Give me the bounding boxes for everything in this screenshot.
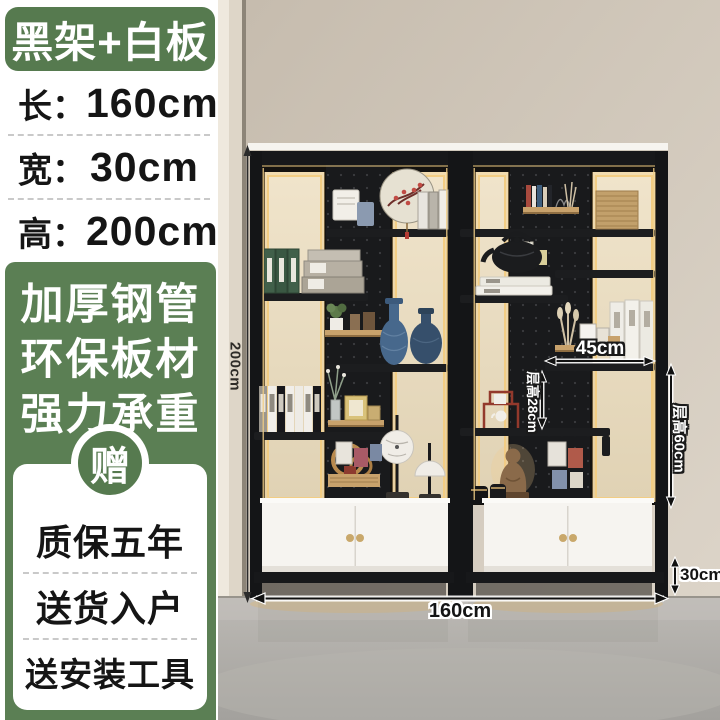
feature-line: 环保板材 xyxy=(5,333,216,388)
dimension-label-base-height: 30cm xyxy=(680,565,720,585)
size-value: 160cm xyxy=(86,80,219,127)
service-row-warranty: 质保五年 xyxy=(13,508,207,572)
service-row-delivery: 送货入户 xyxy=(23,572,197,638)
dimension-label-tier-large: 层高60cm xyxy=(670,393,691,485)
gift-badge: 赠 xyxy=(71,424,149,502)
size-spec-list: 长： 160cm 宽： 30cm 高： 200cm xyxy=(8,72,210,262)
tan-book-stack xyxy=(596,191,638,229)
size-value: 30cm xyxy=(90,144,199,191)
dimension-label-shelf-span: 45cm xyxy=(570,338,630,360)
size-label: 高： xyxy=(18,207,86,256)
led-top-strip xyxy=(248,143,668,151)
service-row-tools: 送安装工具 xyxy=(23,638,197,704)
storage-box-stack xyxy=(302,250,364,293)
variant-badge: 黑架+白板 xyxy=(5,7,215,71)
size-value: 200cm xyxy=(86,208,219,255)
product-promo-image: 黑架+白板 长： 160cm 宽： 30cm 高： 200cm 加厚钢管 环保板… xyxy=(0,0,720,720)
file-boxes-top xyxy=(418,190,448,229)
info-sidebar: 黑架+白板 长： 160cm 宽： 30cm 高： 200cm 加厚钢管 环保板… xyxy=(0,0,218,720)
dimension-label-total-height: 200cm xyxy=(227,339,244,395)
size-row-length: 长： 160cm xyxy=(8,72,210,134)
size-row-height: 高： 200cm xyxy=(8,198,210,262)
size-label: 长： xyxy=(18,79,86,128)
feature-line: 加厚钢管 xyxy=(5,278,216,333)
size-row-width: 宽： 30cm xyxy=(8,134,210,198)
dimension-label-tier-small: 层高28cm xyxy=(524,360,544,444)
size-label: 宽： xyxy=(18,143,90,192)
dimension-label-total-width: 160cm xyxy=(408,600,512,623)
green-file-boxes xyxy=(264,249,299,293)
magazine-file-row xyxy=(259,386,321,432)
pegboard-cards-right xyxy=(548,442,583,489)
product-photo: 200cm 45cm 层高28cm 层高60cm 30cm 160cm xyxy=(218,0,720,720)
